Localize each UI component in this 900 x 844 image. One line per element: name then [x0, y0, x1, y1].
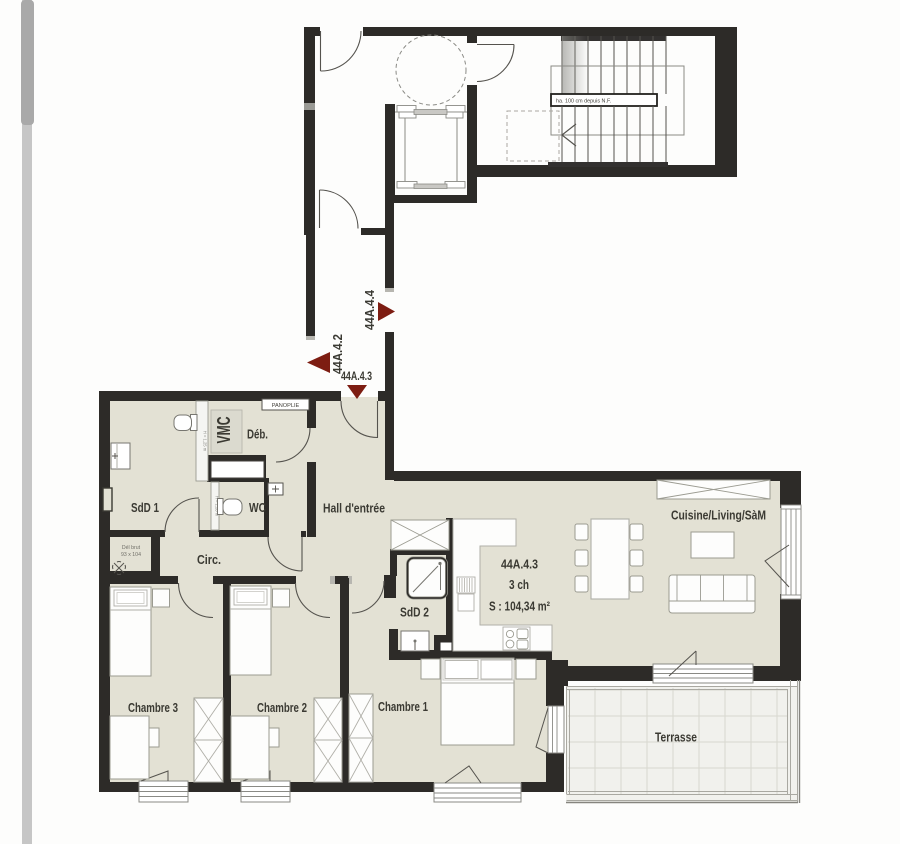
svg-text:Déb.: Déb. — [247, 427, 268, 442]
svg-text:Dél brut: Dél brut — [122, 545, 141, 551]
svg-text:Circ.: Circ. — [197, 552, 221, 567]
svg-text:WC: WC — [249, 500, 266, 515]
svg-text:44A.4.4: 44A.4.4 — [362, 289, 377, 330]
svg-text:Chambre 2: Chambre 2 — [257, 700, 307, 715]
svg-text:SdD 1: SdD 1 — [131, 500, 159, 515]
svg-text:PANOPLIE: PANOPLIE — [272, 403, 300, 409]
svg-text:VMC: VMC — [214, 417, 234, 444]
svg-text:44A.4.3: 44A.4.3 — [341, 371, 372, 383]
svg-text:SdD 2: SdD 2 — [400, 605, 429, 620]
svg-text:ha. 100 cm depuis N.F.: ha. 100 cm depuis N.F. — [556, 99, 611, 105]
svg-text:H = 1,25 m: H = 1,25 m — [203, 431, 208, 452]
svg-text:3 ch: 3 ch — [509, 577, 529, 592]
svg-text:Cuisine/Living/SàM: Cuisine/Living/SàM — [671, 508, 766, 523]
svg-text:Terrasse: Terrasse — [655, 730, 697, 745]
svg-text:44A.4.2: 44A.4.2 — [330, 334, 345, 374]
svg-text:Hall d'entrée: Hall d'entrée — [323, 501, 385, 516]
svg-text:Chambre 1: Chambre 1 — [378, 699, 428, 714]
svg-text:Chambre 3: Chambre 3 — [128, 700, 178, 715]
svg-text:93 x 104: 93 x 104 — [121, 552, 141, 558]
svg-text:S : 104,34 m²: S : 104,34 m² — [489, 599, 550, 614]
svg-text:44A.4.3: 44A.4.3 — [501, 557, 538, 572]
